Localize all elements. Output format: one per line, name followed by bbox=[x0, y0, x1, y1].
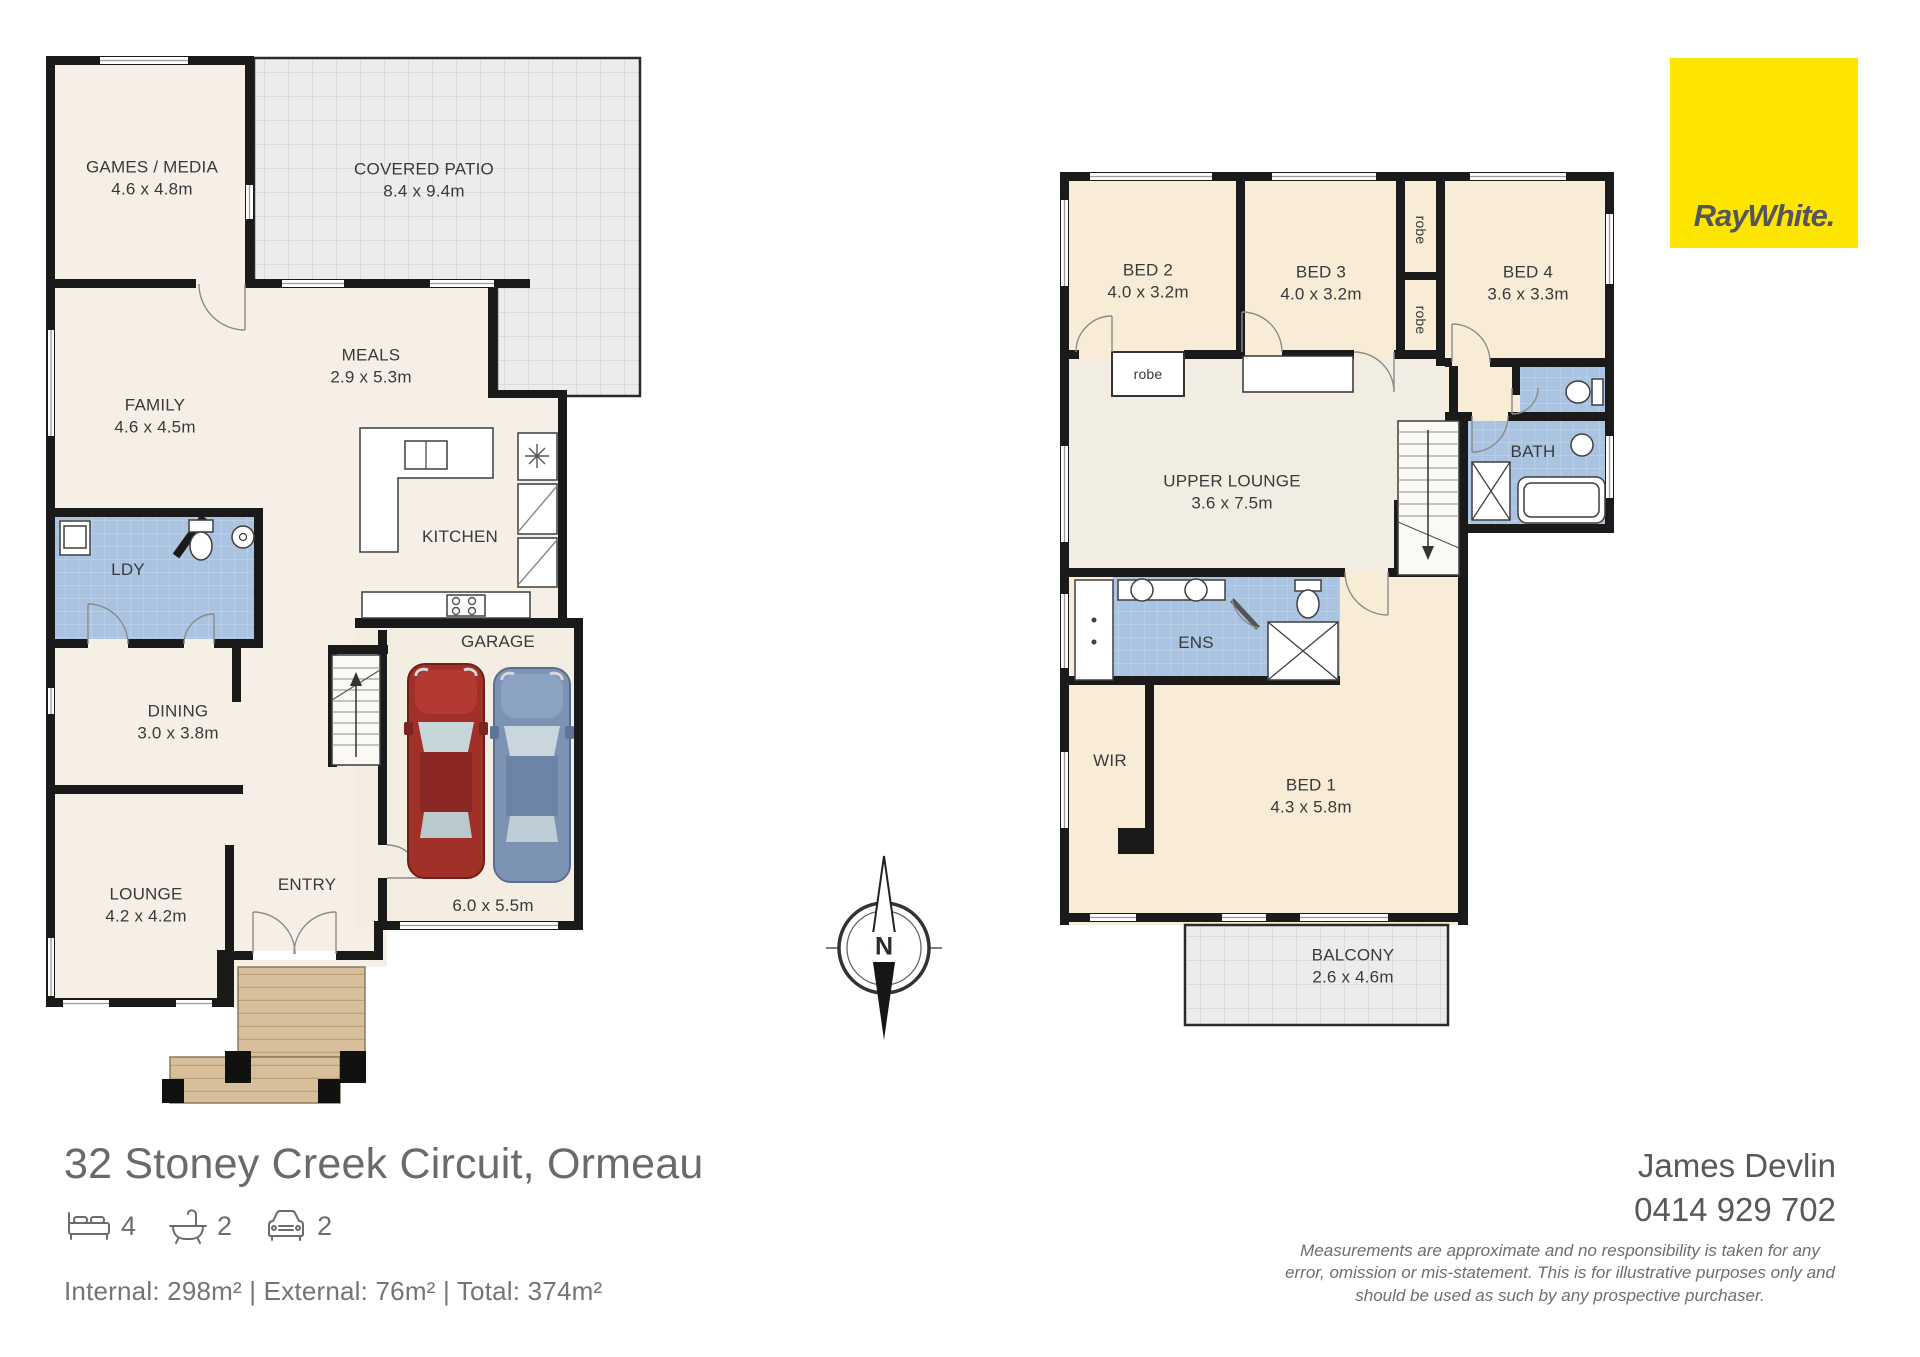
raywhite-logo: RayWhite. bbox=[1670, 58, 1858, 248]
room-label-meals: MEALS2.9 x 5.3m bbox=[330, 344, 411, 388]
cars-count: 2 bbox=[317, 1211, 332, 1242]
room-label-ens: ENS bbox=[1178, 632, 1214, 654]
agent-phone: 0414 929 702 bbox=[1634, 1188, 1836, 1232]
room-label-lounge: LOUNGE4.2 x 4.2m bbox=[105, 883, 186, 927]
room-label-robe-upper: robe bbox=[1411, 216, 1429, 245]
room-label-balcony: BALCONY2.6 x 4.6m bbox=[1312, 944, 1395, 988]
room-label-kitchen: KITCHEN bbox=[422, 526, 498, 548]
room-label-robe-lower: robe bbox=[1411, 306, 1429, 335]
room-label-wir: WIR bbox=[1093, 750, 1127, 772]
room-label-upper-lounge: UPPER LOUNGE3.6 x 7.5m bbox=[1163, 470, 1301, 514]
area-summary: Internal: 298m² | External: 76m² | Total… bbox=[64, 1276, 602, 1307]
room-label-bed4: BED 43.6 x 3.3m bbox=[1487, 261, 1568, 305]
room-label-garage-dims: 6.0 x 5.5m bbox=[452, 895, 533, 917]
bed-icon bbox=[66, 1209, 112, 1243]
bath-icon bbox=[168, 1206, 208, 1246]
floorplan-page: GAMES / MEDIA4.6 x 4.8m COVERED PATIO8.4… bbox=[0, 0, 1920, 1357]
room-label-dining: DINING3.0 x 3.8m bbox=[137, 700, 218, 744]
property-address: 32 Stoney Creek Circuit, Ormeau bbox=[64, 1140, 704, 1189]
room-label-covered-patio: COVERED PATIO8.4 x 9.4m bbox=[354, 158, 494, 202]
car-red bbox=[404, 664, 488, 878]
room-label-laundry: LDY bbox=[111, 559, 145, 581]
room-label-bed3: BED 34.0 x 3.2m bbox=[1280, 261, 1361, 305]
room-label-family: FAMILY4.6 x 4.5m bbox=[114, 394, 195, 438]
agent-details: James Devlin 0414 929 702 bbox=[1634, 1144, 1836, 1231]
room-label-robe-bed2: robe bbox=[1134, 366, 1163, 384]
disclaimer-text: Measurements are approximate and no resp… bbox=[1278, 1240, 1842, 1307]
room-label-bath: BATH bbox=[1511, 441, 1556, 463]
room-label-bed1: BED 14.3 x 5.8m bbox=[1270, 774, 1351, 818]
baths-count: 2 bbox=[217, 1211, 232, 1242]
room-label-games-media: GAMES / MEDIA4.6 x 4.8m bbox=[86, 156, 218, 200]
property-stats: 4 2 2 bbox=[66, 1206, 332, 1246]
raywhite-logo-text: RayWhite. bbox=[1670, 198, 1858, 234]
car-icon bbox=[264, 1207, 308, 1245]
room-label-entry: ENTRY bbox=[278, 874, 336, 896]
room-label-garage: GARAGE bbox=[461, 631, 535, 653]
car-blue bbox=[490, 668, 574, 882]
room-label-bed2: BED 24.0 x 3.2m bbox=[1107, 259, 1188, 303]
agent-name: James Devlin bbox=[1634, 1144, 1836, 1188]
beds-count: 4 bbox=[121, 1211, 136, 1242]
compass-north-label: N bbox=[875, 933, 893, 962]
